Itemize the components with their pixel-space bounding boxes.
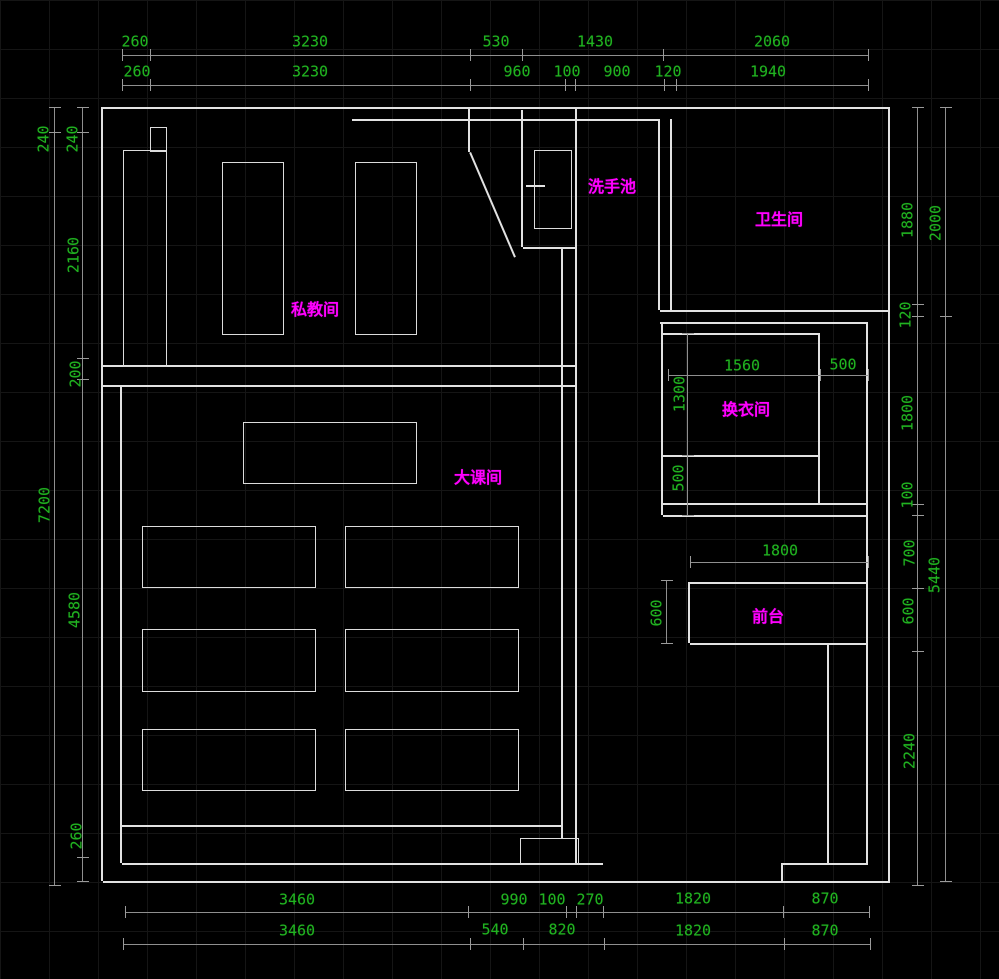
basin-door — [534, 150, 572, 229]
dimension-tick — [682, 333, 694, 334]
dimension-tick — [604, 938, 605, 950]
dimension-tick — [77, 881, 89, 882]
dimension-label-left-inner: 2160 — [67, 237, 82, 273]
wall-line — [688, 582, 690, 643]
dimension-tick — [690, 556, 691, 568]
dimension-tick — [523, 938, 524, 950]
dimension-line — [668, 375, 868, 376]
dimension-line — [123, 944, 870, 945]
dimension-label-left-outer: 7200 — [38, 487, 53, 523]
wall-line — [658, 119, 660, 310]
dimension-label-interior: 1300 — [673, 376, 688, 412]
dimension-label-top-inner: 3230 — [292, 65, 328, 80]
dimension-tick — [912, 651, 924, 652]
room-label-toilet: 卫生间 — [755, 212, 803, 228]
dimension-label-top-outer: 530 — [482, 35, 509, 50]
dimension-label-top-outer: 1430 — [577, 35, 613, 50]
dimension-label-bottom-upper: 1820 — [675, 892, 711, 907]
dimension-label-bottom-upper: 990 — [500, 893, 527, 908]
dimension-label-top-inner: 260 — [123, 65, 150, 80]
wall-column — [123, 150, 167, 367]
dimension-label-left-inner: 200 — [69, 360, 84, 387]
room-label-group-class-room: 大课间 — [454, 470, 502, 486]
wall-notch — [150, 127, 167, 152]
wall-line — [818, 333, 820, 503]
wall-line — [690, 582, 868, 584]
class-mat-top — [243, 422, 417, 484]
dimension-tick — [150, 79, 151, 91]
dimension-tick — [470, 938, 471, 950]
dimension-label-right-outer: 2000 — [929, 205, 944, 241]
dimension-tick — [125, 906, 126, 918]
dimension-tick — [868, 369, 869, 381]
dimension-tick — [682, 515, 694, 516]
dimension-tick — [868, 79, 869, 91]
dimension-label-top-inner: 100 — [553, 65, 580, 80]
dimension-tick — [676, 79, 677, 91]
dimension-label-bottom-upper: 100 — [538, 893, 565, 908]
cad-canvas[interactable]: 2603230530143020602603230960100900120194… — [0, 0, 999, 979]
dimension-tick — [77, 857, 89, 858]
dimension-label-right-inner: 600 — [902, 597, 917, 624]
equipment-rect-2 — [355, 162, 417, 335]
wall-line — [888, 107, 890, 881]
dimension-line — [54, 107, 55, 885]
wall-line — [470, 152, 516, 258]
dimension-label-right-inner: 120 — [899, 301, 914, 328]
dimension-tick — [868, 556, 869, 568]
wall-line — [101, 107, 103, 881]
dimension-label-interior: 600 — [650, 599, 665, 626]
dimension-label-interior: 1560 — [724, 359, 760, 374]
wall-line — [103, 881, 890, 883]
dimension-tick — [468, 906, 469, 918]
wall-line — [103, 107, 890, 109]
dimension-line — [945, 107, 946, 881]
dimension-label-right-inner: 1800 — [901, 395, 916, 431]
dimension-label-bottom-upper: 3460 — [279, 893, 315, 908]
dimension-label-interior: 1800 — [762, 544, 798, 559]
dimension-tick — [77, 107, 89, 108]
dimension-label-interior: 500 — [672, 464, 687, 491]
wall-line — [103, 365, 577, 367]
dimension-label-top-inner: 960 — [503, 65, 530, 80]
dimension-label-bottom-lower: 3460 — [279, 924, 315, 939]
dimension-label-top-outer: 260 — [121, 35, 148, 50]
dimension-line — [122, 55, 868, 56]
dimension-tick — [150, 49, 151, 61]
dimension-label-right-inner: 2240 — [903, 733, 918, 769]
dimension-label-bottom-lower: 540 — [481, 923, 508, 938]
dimension-label-top-inner: 120 — [654, 65, 681, 80]
dimension-tick — [49, 107, 61, 108]
wall-line — [660, 310, 890, 312]
dimension-label-bottom-lower: 870 — [811, 924, 838, 939]
room-label-front-desk: 前台 — [752, 609, 784, 625]
dimension-tick — [575, 79, 576, 91]
wall-line — [663, 503, 868, 505]
wall-line — [783, 863, 868, 865]
dimension-tick — [565, 79, 566, 91]
dimension-tick — [470, 49, 471, 61]
dimension-tick — [522, 49, 523, 61]
class-mat-r3c2 — [345, 729, 519, 791]
dimension-tick — [912, 107, 924, 108]
class-mat-r1c2 — [345, 526, 519, 588]
class-mat-r2c1 — [142, 629, 316, 692]
dimension-label-bottom-lower: 820 — [548, 923, 575, 938]
room-label-private-training-room: 私教间 — [291, 302, 339, 318]
dimension-label-top-outer: 2060 — [754, 35, 790, 50]
wall-line — [866, 322, 868, 863]
dimension-tick — [661, 580, 673, 581]
dimension-tick — [49, 885, 61, 886]
wall-line — [523, 247, 577, 249]
dimension-label-bottom-lower: 1820 — [675, 924, 711, 939]
class-mat-r3c1 — [142, 729, 316, 791]
dimension-label-right-outer: 5440 — [928, 557, 943, 593]
wall-line — [561, 248, 563, 838]
wall-line — [120, 385, 122, 863]
dimension-tick — [940, 881, 952, 882]
wall-line — [575, 107, 577, 863]
dimension-tick — [783, 906, 784, 918]
class-mat-r2c2 — [345, 629, 519, 692]
wall-line — [103, 385, 577, 387]
dimension-tick — [664, 79, 665, 91]
wall-line — [122, 825, 563, 827]
dimension-tick — [912, 588, 924, 589]
dimension-label-left-inner: 240 — [66, 125, 81, 152]
dimension-line — [122, 85, 868, 86]
dimension-label-right-inner: 100 — [901, 481, 916, 508]
dimension-tick — [912, 885, 924, 886]
wall-line — [521, 110, 523, 247]
dimension-tick — [940, 107, 952, 108]
dimension-tick — [870, 938, 871, 950]
dimension-label-right-inner: 1880 — [901, 202, 916, 238]
dimension-label-right-inner: 700 — [903, 539, 918, 566]
dimension-line — [666, 580, 667, 643]
dimension-tick — [820, 369, 821, 381]
dimension-tick — [668, 369, 669, 381]
class-mat-r1c1 — [142, 526, 316, 588]
wall-line — [690, 643, 868, 645]
bottom-step-box — [520, 838, 579, 865]
dimension-tick — [122, 49, 123, 61]
dimension-tick — [663, 49, 664, 61]
dimension-line — [690, 562, 868, 563]
dimension-tick — [784, 938, 785, 950]
wall-line — [661, 322, 663, 515]
dimension-tick — [123, 938, 124, 950]
dimension-label-top-inner: 900 — [603, 65, 630, 80]
dimension-label-left-outer: 240 — [37, 125, 52, 152]
dimension-label-top-outer: 3230 — [292, 35, 328, 50]
dimension-tick — [940, 316, 952, 317]
dimension-label-left-inner: 4580 — [68, 592, 83, 628]
dimension-line — [82, 107, 83, 881]
dimension-tick — [869, 906, 870, 918]
dimension-tick — [868, 49, 869, 61]
dimension-tick — [566, 906, 567, 918]
wall-line — [827, 643, 829, 863]
dimension-tick — [77, 358, 89, 359]
dimension-label-bottom-upper: 270 — [576, 893, 603, 908]
equipment-rect-1 — [222, 162, 284, 335]
dimension-label-left-inner: 260 — [70, 822, 85, 849]
dimension-tick — [122, 79, 123, 91]
dimension-label-interior: 500 — [829, 358, 856, 373]
wall-line — [660, 322, 868, 324]
dimension-line — [125, 912, 869, 913]
dimension-tick — [661, 643, 673, 644]
wall-line — [468, 107, 470, 152]
room-label-wash-basin: 洗手池 — [588, 179, 636, 195]
dimension-tick — [682, 455, 694, 456]
room-label-changing-room: 换衣间 — [722, 402, 770, 418]
wall-line — [781, 863, 783, 881]
dimension-label-bottom-upper: 870 — [811, 892, 838, 907]
wall-line — [670, 119, 672, 310]
dimension-tick — [470, 79, 471, 91]
dimension-label-top-inner: 1940 — [750, 65, 786, 80]
wall-line — [352, 119, 660, 121]
dimension-tick — [912, 515, 924, 516]
